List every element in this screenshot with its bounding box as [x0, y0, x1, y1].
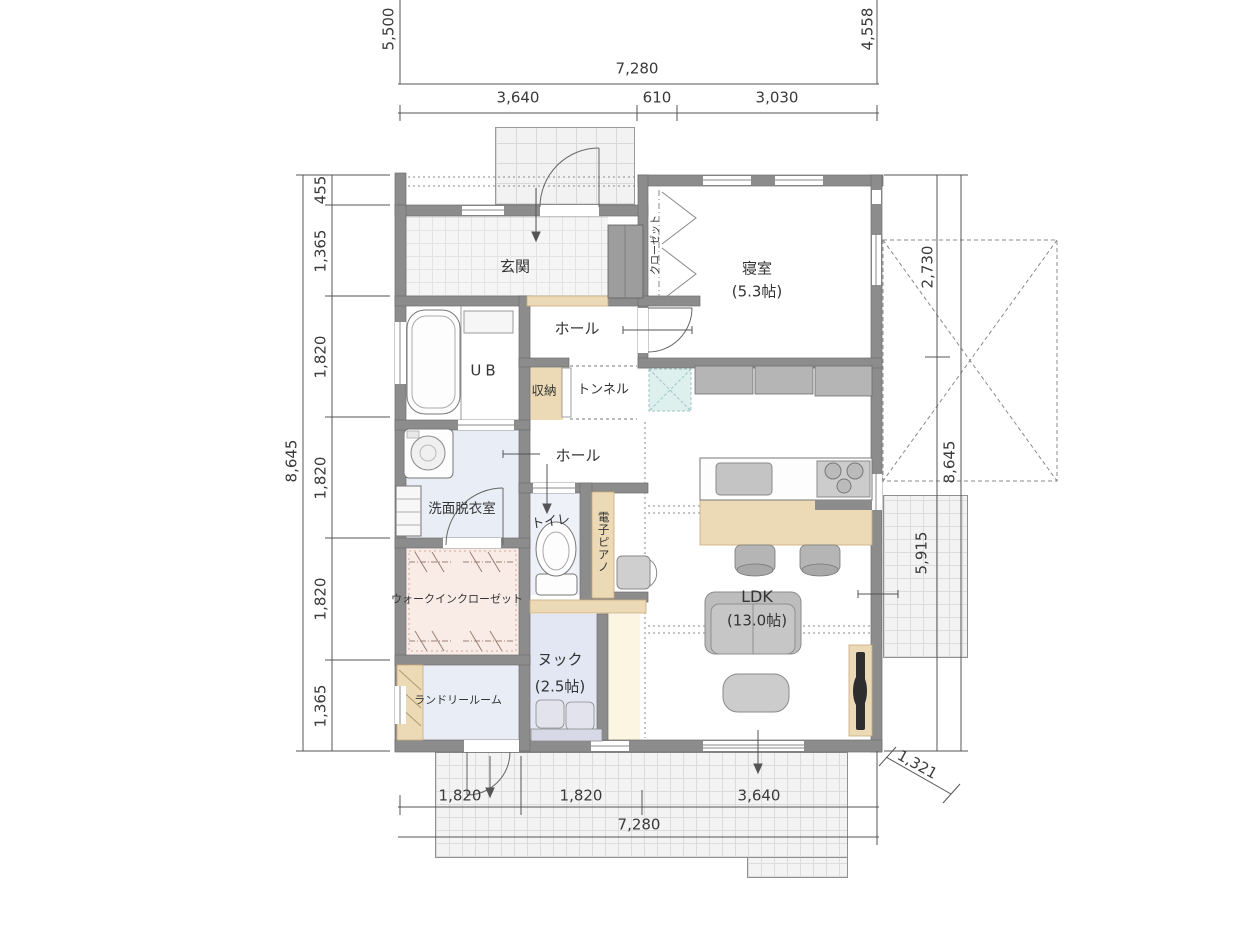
closet-bifold-doors: [659, 190, 696, 300]
dim-bottom-seg-3: 3,640: [738, 787, 781, 804]
room-label-piano: 電子ピアノ: [596, 511, 609, 574]
dim-top-seg-1: 3,640: [497, 89, 540, 106]
room-label-hall-lower: ホール: [555, 447, 600, 464]
dim-bottom-total: 7,280: [618, 816, 661, 833]
washing-machine: [404, 429, 453, 478]
dim-top-seg-2: 610: [643, 89, 672, 106]
coffee-table: [723, 674, 789, 712]
roof-outline-x-box: [883, 240, 1057, 481]
counter-stools: [735, 545, 840, 576]
dim-left-seg-1: 455: [312, 176, 329, 205]
room-label-ub: UB: [470, 362, 499, 379]
room-label-laundry: ランドリールーム: [414, 695, 502, 708]
shoe-cabinet: [608, 225, 643, 298]
floor-plan-canvas: 玄関 寝室 (5.3帖) クローゼット ホール UB 収納 トンネル ホール 洗…: [0, 0, 1253, 940]
dim-left-seg-5: 1,820: [312, 578, 329, 621]
room-label-wic: ウォークインクローゼット: [391, 594, 523, 607]
dim-bottom-seg-1: 1,820: [439, 787, 482, 804]
room-label-ldk-size: (13.0帖): [727, 612, 787, 629]
dim-left-total: 8,645: [283, 440, 300, 483]
dim-right-upper-vertical: 4,558: [859, 8, 876, 51]
room-label-ldk: LDK: [741, 588, 773, 606]
dim-left-seg-2: 1,365: [312, 230, 329, 273]
nook-seats: [531, 700, 602, 741]
washroom-cabinet: [396, 486, 421, 536]
piano-stool: [617, 556, 657, 589]
room-label-genkan: 玄関: [500, 258, 530, 275]
dim-left-upper-vertical: 5,500: [380, 8, 397, 51]
dim-bottom-seg-2: 1,820: [560, 787, 603, 804]
dim-top-total: 7,280: [616, 60, 659, 77]
room-label-bedroom: 寝室: [742, 260, 772, 277]
room-label-washroom: 洗面脱衣室: [428, 502, 496, 518]
room-label-hall-upper: ホール: [554, 320, 599, 337]
room-label-closet: クローゼット: [650, 215, 662, 275]
dim-right-total: 8,645: [941, 441, 958, 484]
toilet-fixture: [536, 522, 577, 595]
room-label-storage: 収納: [531, 384, 556, 398]
dim-left-seg-3: 1,820: [312, 336, 329, 379]
room-label-nook: ヌック: [537, 651, 582, 668]
dim-left-seg-6: 1,365: [312, 685, 329, 728]
room-label-tunnel: トンネル: [577, 384, 629, 399]
kitchen-back-cabinets: [695, 366, 872, 396]
tatami-square: [649, 369, 691, 411]
room-label-nook-size: (2.5帖): [535, 678, 586, 695]
plan-linework: [0, 0, 1253, 940]
dim-right-seg-lower: 5,915: [913, 532, 930, 575]
dim-left-seg-4: 1,820: [312, 457, 329, 500]
dim-top-seg-3: 3,030: [756, 89, 799, 106]
room-label-bedroom-size: (5.3帖): [732, 283, 783, 300]
dim-right-seg-upper: 2,730: [919, 246, 936, 289]
